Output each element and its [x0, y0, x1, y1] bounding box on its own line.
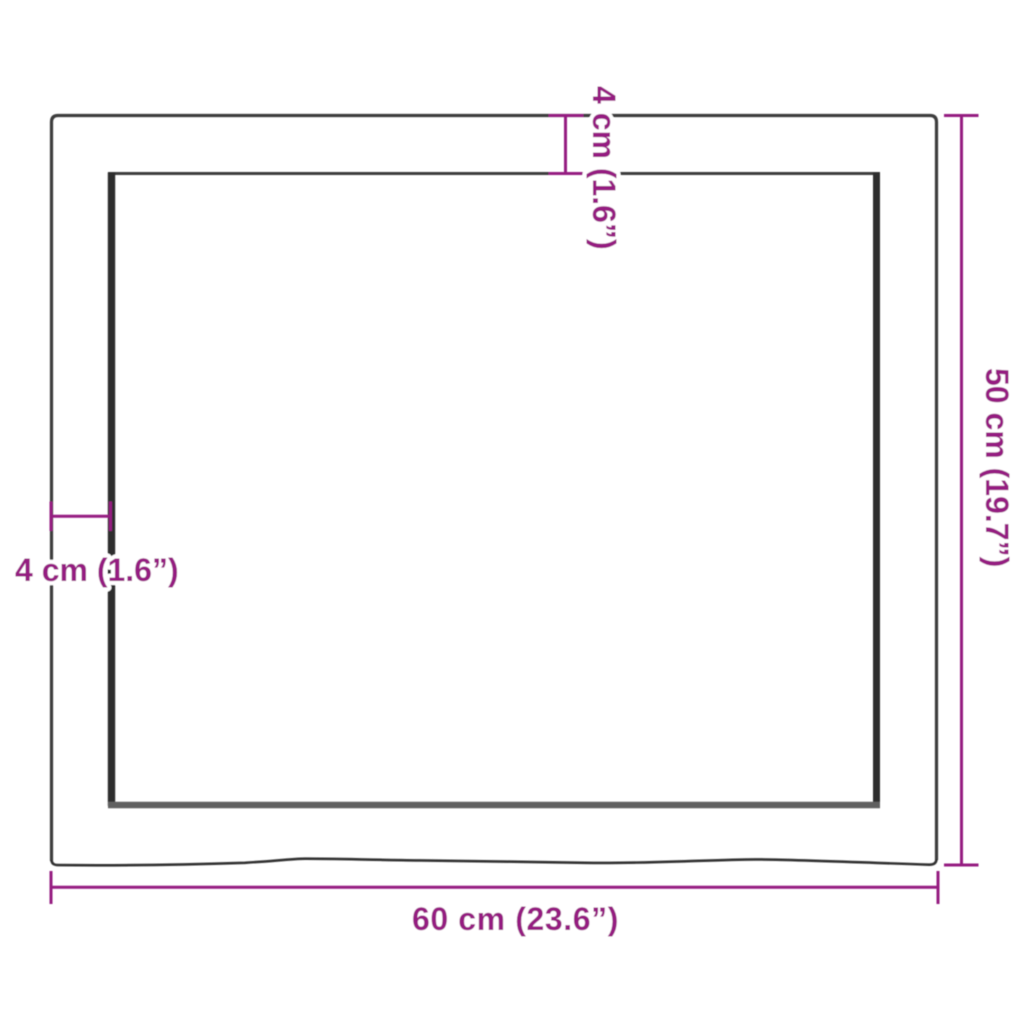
svg-text:60 cm (23.6”): 60 cm (23.6”)	[412, 901, 619, 937]
svg-text:4 cm (1.6”): 4 cm (1.6”)	[15, 552, 179, 588]
svg-text:50 cm (19.7”): 50 cm (19.7”)	[979, 368, 1015, 567]
svg-text:4 cm (1.6”): 4 cm (1.6”)	[586, 86, 622, 250]
